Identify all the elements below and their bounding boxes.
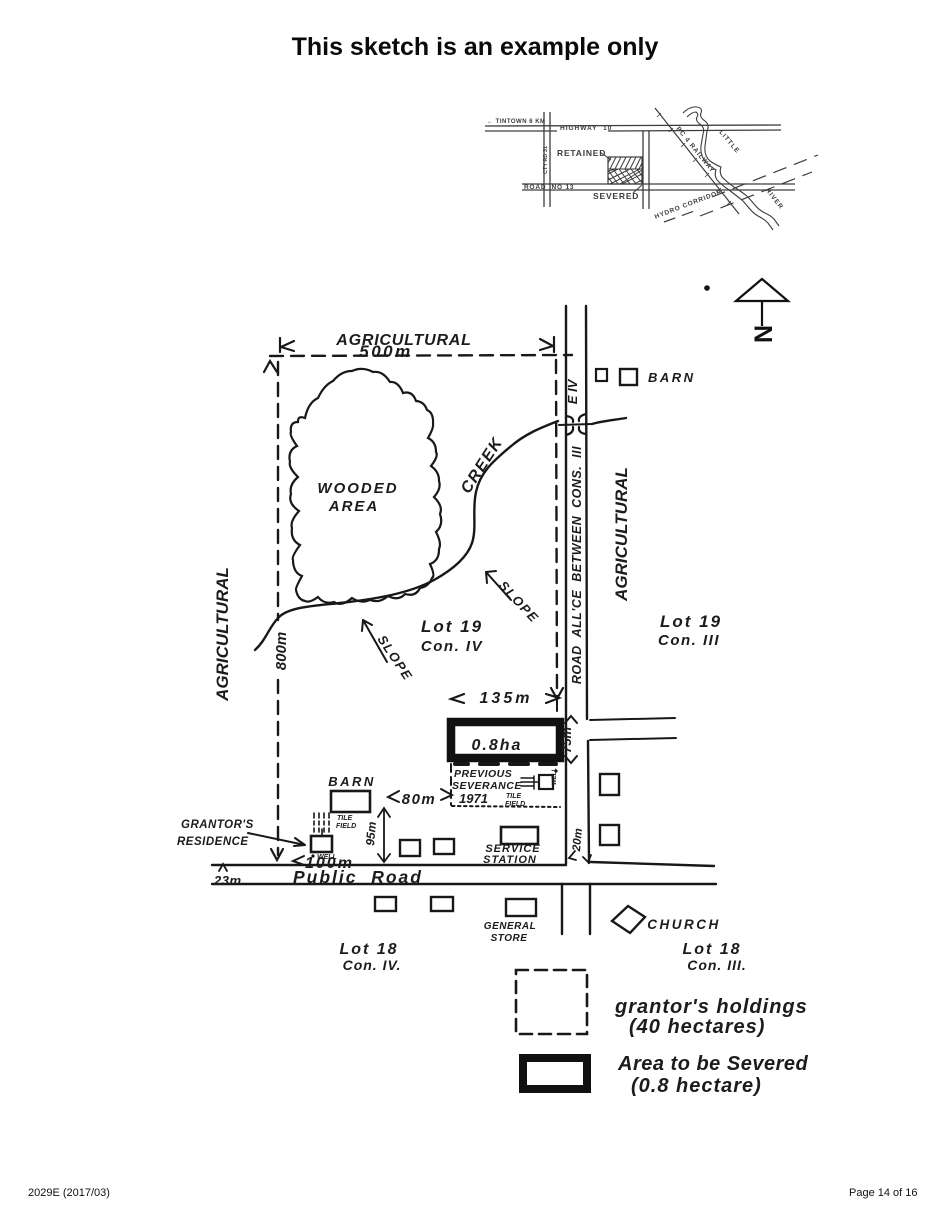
svg-text:FIELD: FIELD: [336, 823, 356, 830]
svg-text:0.8ha: 0.8ha: [472, 737, 523, 754]
svg-text:FIELD: FIELD: [505, 801, 525, 808]
svg-text:GRANTOR'S: GRANTOR'S: [181, 819, 254, 831]
svg-text:Con. III: Con. III: [658, 632, 720, 649]
svg-text:Lot 18: Lot 18: [682, 941, 741, 958]
svg-text:SEVERED: SEVERED: [593, 191, 639, 201]
svg-text:RESIDENCE: RESIDENCE: [177, 836, 249, 848]
svg-text:(40 hectares): (40 hectares): [629, 1016, 765, 1038]
svg-text:23m: 23m: [213, 873, 242, 888]
svg-text:N: N: [748, 325, 776, 343]
svg-text:HYDRO CORRIDOR: HYDRO CORRIDOR: [654, 188, 724, 220]
svg-text:CTY RD 31: CTY RD 31: [543, 146, 549, 174]
svg-text:PC 4 RAILWAY: PC 4 RAILWAY: [674, 126, 715, 175]
svg-text:grantor's holdings: grantor's holdings: [614, 996, 808, 1018]
svg-text:← TINTOWN 6 KM: ← TINTOWN 6 KM: [487, 119, 546, 125]
svg-text:WOODED: WOODED: [317, 480, 398, 497]
svg-text:TILE: TILE: [337, 815, 352, 822]
svg-text:500m: 500m: [359, 342, 412, 361]
svg-text:ROAD ALL'CE BETWEEN CONS.: ROAD ALL'CE BETWEEN CONS. III: [570, 446, 584, 684]
svg-text:STATION: STATION: [483, 854, 537, 866]
svg-text:75m: 75m: [559, 727, 574, 753]
svg-text:RETAINED: RETAINED: [557, 148, 606, 158]
svg-text:WELL: WELL: [552, 768, 558, 785]
svg-text:80m: 80m: [402, 791, 437, 808]
svg-text:Con. III.: Con. III.: [687, 957, 747, 973]
svg-text:Con. IV: Con. IV: [421, 638, 484, 655]
svg-text:E IV: E IV: [565, 378, 580, 404]
svg-text:95m: 95m: [363, 821, 379, 846]
svg-text:AGRICULTURAL: AGRICULTURAL: [213, 567, 232, 702]
svg-text:BARN: BARN: [648, 370, 696, 385]
svg-text:BARN: BARN: [328, 774, 376, 789]
svg-text:Con. IV.: Con. IV.: [343, 957, 402, 973]
svg-text:Area to be Severed: Area to be Severed: [617, 1053, 808, 1075]
svg-text:(0.8 hectare): (0.8 hectare): [631, 1075, 762, 1097]
svg-text:GENERAL: GENERAL: [484, 921, 536, 932]
svg-text:RIVER: RIVER: [764, 187, 785, 211]
svg-text:SLOPE: SLOPE: [375, 632, 416, 683]
svg-text:800m: 800m: [273, 632, 290, 670]
svg-text:LITTLE: LITTLE: [717, 129, 740, 155]
svg-text:Lot 19: Lot 19: [660, 612, 722, 631]
svg-text:TILE: TILE: [506, 793, 521, 800]
svg-text:20m: 20m: [571, 828, 585, 853]
svg-text:Lot 18: Lot 18: [339, 941, 398, 958]
svg-text:Lot 19: Lot 19: [421, 617, 483, 636]
svg-text:STORE: STORE: [491, 933, 528, 944]
svg-text:SLOPE: SLOPE: [496, 578, 542, 626]
svg-text:1971: 1971: [459, 791, 488, 806]
svg-text:PREVIOUS: PREVIOUS: [454, 768, 512, 780]
svg-text:ROAD NO 13: ROAD NO 13: [524, 184, 574, 191]
svg-text:AREA: AREA: [328, 498, 380, 515]
svg-text:AGRICULTURAL: AGRICULTURAL: [612, 467, 631, 602]
svg-text:CHURCH: CHURCH: [647, 917, 721, 932]
svg-text:HIGHWAY 10: HIGHWAY 10: [560, 125, 612, 132]
svg-text:CREEK: CREEK: [458, 434, 507, 497]
svg-text:Public Road: Public Road: [293, 867, 423, 887]
svg-text:135m: 135m: [480, 690, 533, 707]
